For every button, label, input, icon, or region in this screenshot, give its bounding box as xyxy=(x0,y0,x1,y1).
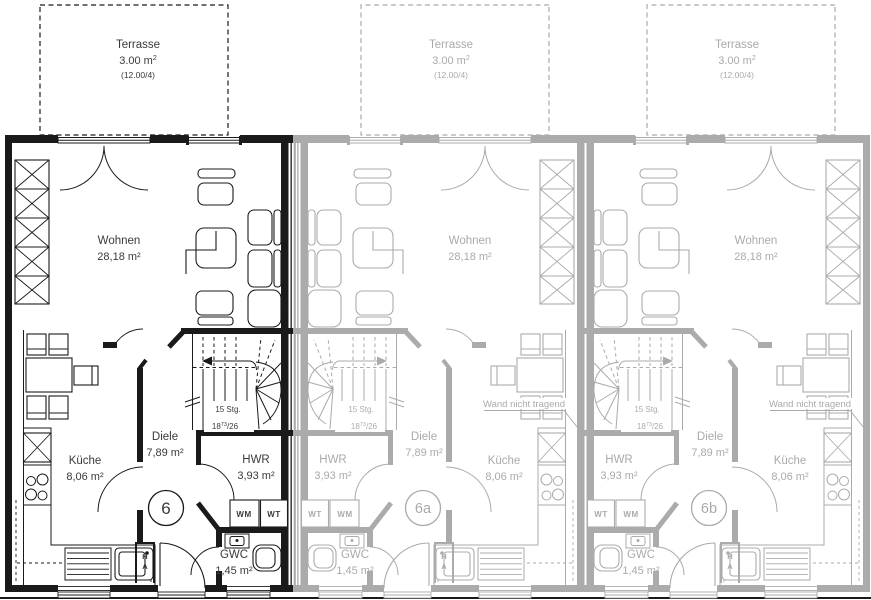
room-area-hwr: 3,93 m² xyxy=(600,470,638,482)
unit-number-6: 6 xyxy=(161,499,170,518)
room-area-diele: 7,89 m² xyxy=(405,447,443,459)
room-area-diele: 7,89 m² xyxy=(146,447,184,459)
ha-label-h: H xyxy=(727,552,732,561)
room-label-wohnen: Wohnen xyxy=(735,235,778,247)
ha-label-a: A xyxy=(142,562,148,571)
ha-label-a: A xyxy=(727,562,733,571)
room-area-hwr: 3,93 m² xyxy=(314,470,352,482)
terrace-label: Terrasse xyxy=(715,39,759,51)
room-label-diele: Diele xyxy=(697,431,723,443)
terrace-calc: (12.00/4) xyxy=(121,70,155,80)
room-label-hwr: HWR xyxy=(242,454,269,466)
wm-label: WM xyxy=(623,510,638,519)
floor-plan-page: Terrasse 3.00 m2 (12.00/4) Wohnen 28,18 … xyxy=(0,0,871,600)
room-label-gwc: GWC xyxy=(627,549,655,561)
terrace-label: Terrasse xyxy=(429,39,473,51)
wt-label: WT xyxy=(267,510,280,519)
room-area-gwc: 1,45 m² xyxy=(622,565,660,577)
room-area-diele: 7,89 m² xyxy=(691,447,729,459)
room-label-gwc: GWC xyxy=(220,549,248,561)
terrace-area: 3.00 m2 xyxy=(432,55,470,67)
stair-count: 15 Stg. xyxy=(348,405,373,414)
room-area-gwc: 1,45 m² xyxy=(336,565,374,577)
terrace-label: Terrasse xyxy=(116,39,160,51)
terrace-calc: (12.00/4) xyxy=(720,70,754,80)
room-label-kueche: Küche xyxy=(69,455,102,467)
stair-count: 15 Stg. xyxy=(634,405,659,414)
terrace-area: 3.00 m2 xyxy=(119,55,157,67)
room-area-kueche: 8,06 m² xyxy=(771,471,809,483)
terrace-area: 3.00 m2 xyxy=(718,55,756,67)
wt-label: WT xyxy=(308,510,321,519)
room-label-diele: Diele xyxy=(152,431,178,443)
unit-number-6b: 6b xyxy=(701,501,717,517)
terrace-calc: (12.00/4) xyxy=(434,70,468,80)
stair-count: 15 Stg. xyxy=(215,405,240,414)
wt-label: WT xyxy=(594,510,607,519)
room-label-hwr: HWR xyxy=(605,454,632,466)
room-area-hwr: 3,93 m² xyxy=(237,470,275,482)
room-label-wohnen: Wohnen xyxy=(98,235,141,247)
ha-label-h: H xyxy=(441,552,446,561)
room-label-kueche: Küche xyxy=(488,455,521,467)
ground-line xyxy=(0,597,871,599)
unit-6-plan xyxy=(5,5,296,598)
wand-annotation: Wand nicht tragend xyxy=(483,399,565,410)
room-area-kueche: 8,06 m² xyxy=(66,471,104,483)
room-area-gwc: 1,45 m² xyxy=(215,565,253,577)
ha-label-h: H xyxy=(142,552,147,561)
room-label-kueche: Küche xyxy=(774,455,807,467)
unit-number-6a: 6a xyxy=(415,501,432,517)
wm-label: WM xyxy=(337,510,352,519)
ha-label-a: A xyxy=(441,562,447,571)
wm-label: WM xyxy=(236,510,251,519)
room-area-kueche: 8,06 m² xyxy=(485,471,523,483)
room-area-wohnen: 28,18 m² xyxy=(734,251,778,263)
room-label-hwr: HWR xyxy=(319,454,346,466)
room-label-wohnen: Wohnen xyxy=(449,235,492,247)
room-area-wohnen: 28,18 m² xyxy=(97,251,141,263)
room-label-diele: Diele xyxy=(411,431,437,443)
room-label-gwc: GWC xyxy=(341,549,369,561)
room-area-wohnen: 28,18 m² xyxy=(448,251,492,263)
floor-plan-svg: Terrasse 3.00 m2 (12.00/4) Wohnen 28,18 … xyxy=(0,0,871,600)
wand-annotation: Wand nicht tragend xyxy=(769,399,851,410)
